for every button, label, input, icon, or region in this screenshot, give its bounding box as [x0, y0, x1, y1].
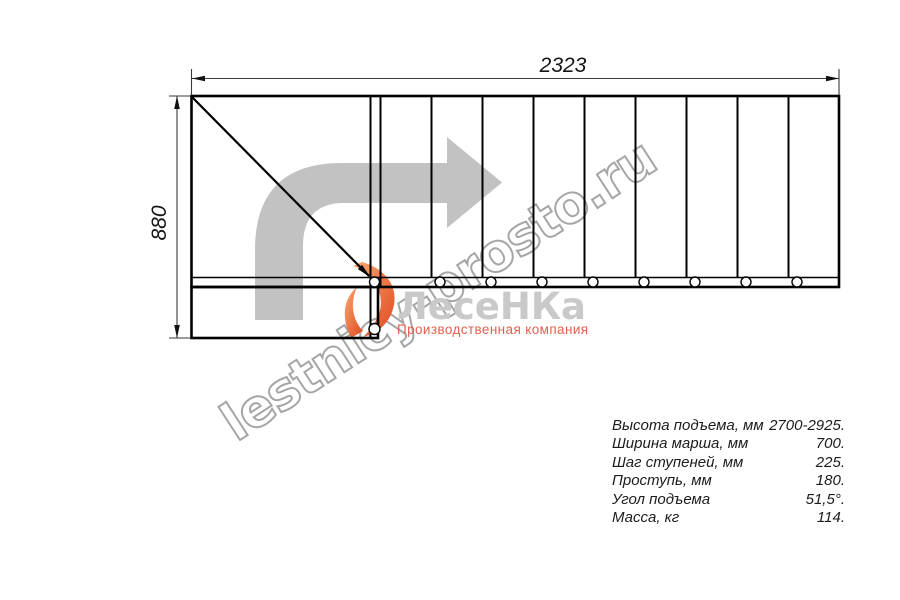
spec-label: Шаг ступеней, мм — [612, 454, 743, 472]
spec-label: Масса, кг — [612, 509, 679, 527]
spec-label: Угол подъема — [612, 491, 710, 509]
spec-value: 225. — [816, 454, 845, 472]
spec-table: Высота подъема, мм 2700-2925. Ширина мар… — [612, 417, 845, 527]
spec-value: 700. — [816, 435, 845, 453]
spec-row-step: Шаг ступеней, мм 225. — [612, 454, 845, 472]
logo-subtitle: Производственная компания — [397, 322, 588, 337]
spec-value: 180. — [816, 472, 845, 490]
top-dimension-label: 2323 — [539, 54, 587, 77]
spec-row-width: Ширина марша, мм 700. — [612, 435, 845, 453]
spec-value: 2700-2925. — [769, 417, 845, 435]
spec-value: 51,5°. — [806, 491, 845, 509]
spec-label: Проступь, мм — [612, 472, 712, 490]
spec-label: Высота подъема, мм — [612, 417, 764, 435]
left-dimension-label: 880 — [148, 205, 171, 240]
spec-label: Ширина марша, мм — [612, 435, 748, 453]
stair-drawing-page: lestnicy-prosto.ru ЛесеНКа Производствен… — [0, 0, 900, 600]
spec-row-tread: Проступь, мм 180. — [612, 472, 845, 490]
spec-value: 114. — [817, 509, 845, 527]
spec-row-mass: Масса, кг 114. — [612, 509, 845, 527]
spec-row-height: Высота подъема, мм 2700-2925. — [612, 417, 845, 435]
spec-row-angle: Угол подъема 51,5°. — [612, 491, 845, 509]
